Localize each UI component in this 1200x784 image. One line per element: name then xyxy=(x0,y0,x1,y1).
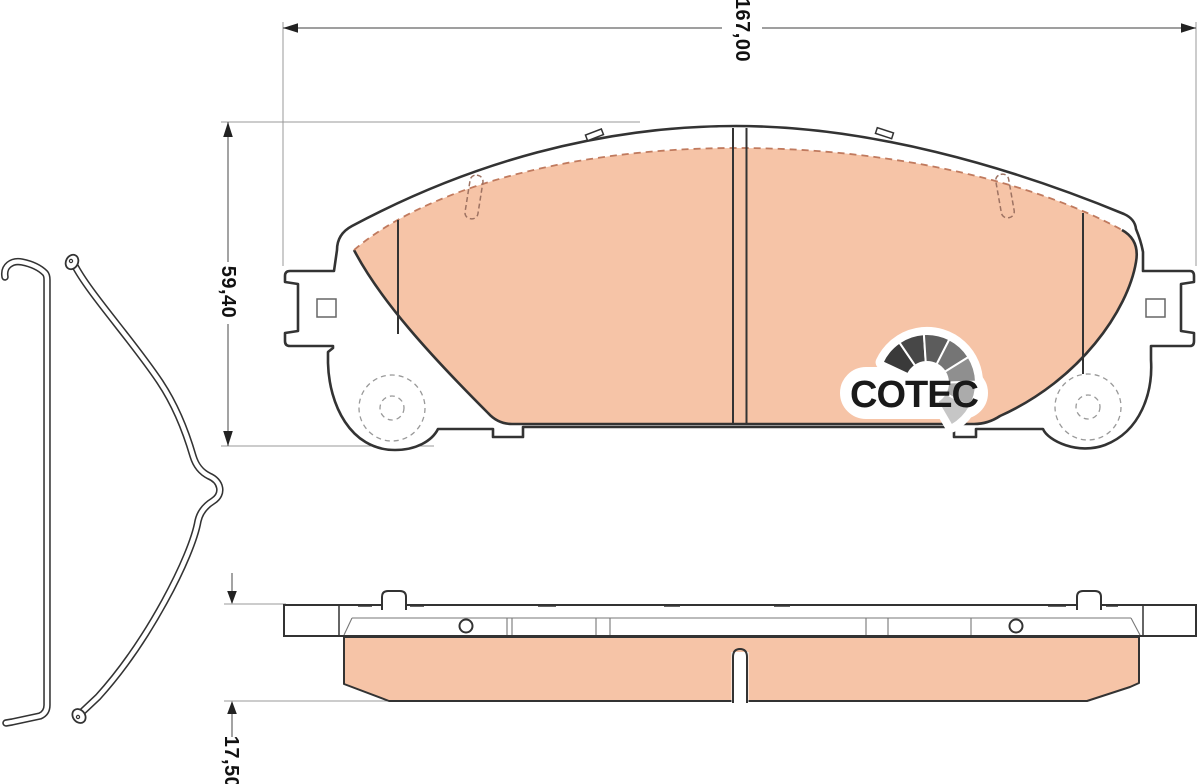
retaining-tab-left xyxy=(382,591,406,610)
arc-step-notch-right xyxy=(875,128,893,139)
arrowhead-down-icon xyxy=(223,431,233,446)
rivet-hole-right xyxy=(1010,620,1023,633)
clip-wire-outer xyxy=(5,262,47,723)
arrowhead-up-icon xyxy=(223,122,233,137)
front-view: COTEC xyxy=(285,126,1194,450)
clip-bow-wire-outer xyxy=(74,264,220,713)
friction-material xyxy=(354,148,1137,424)
arrowhead-right-icon xyxy=(1181,23,1196,33)
arrowhead-down-icon xyxy=(227,591,237,604)
brake-pad-technical-drawing: 167,00 59,40 17,50 xyxy=(0,0,1200,784)
retaining-tab-right xyxy=(1077,591,1101,610)
ear-hole-left xyxy=(317,299,336,317)
side-view xyxy=(284,591,1196,705)
dimension-thickness-label: 17,50 xyxy=(220,736,242,784)
logo-text: COTEC xyxy=(850,374,979,416)
rivet-hole-left xyxy=(460,620,473,633)
arrowhead-up-icon xyxy=(227,701,237,714)
arrowhead-left-icon xyxy=(283,23,298,33)
clip-bow-wire-inner xyxy=(74,264,220,713)
side-backing-plate xyxy=(284,605,1196,636)
dimension-height-label: 59,40 xyxy=(217,266,239,319)
dimension-width-label: 167,00 xyxy=(731,0,753,62)
spring-clip xyxy=(5,253,220,726)
technical-drawing-page: 167,00 59,40 17,50 xyxy=(0,0,1200,784)
side-groove-fill xyxy=(732,652,749,705)
ear-hole-right xyxy=(1146,299,1165,317)
clip-wire-inner xyxy=(5,262,47,723)
